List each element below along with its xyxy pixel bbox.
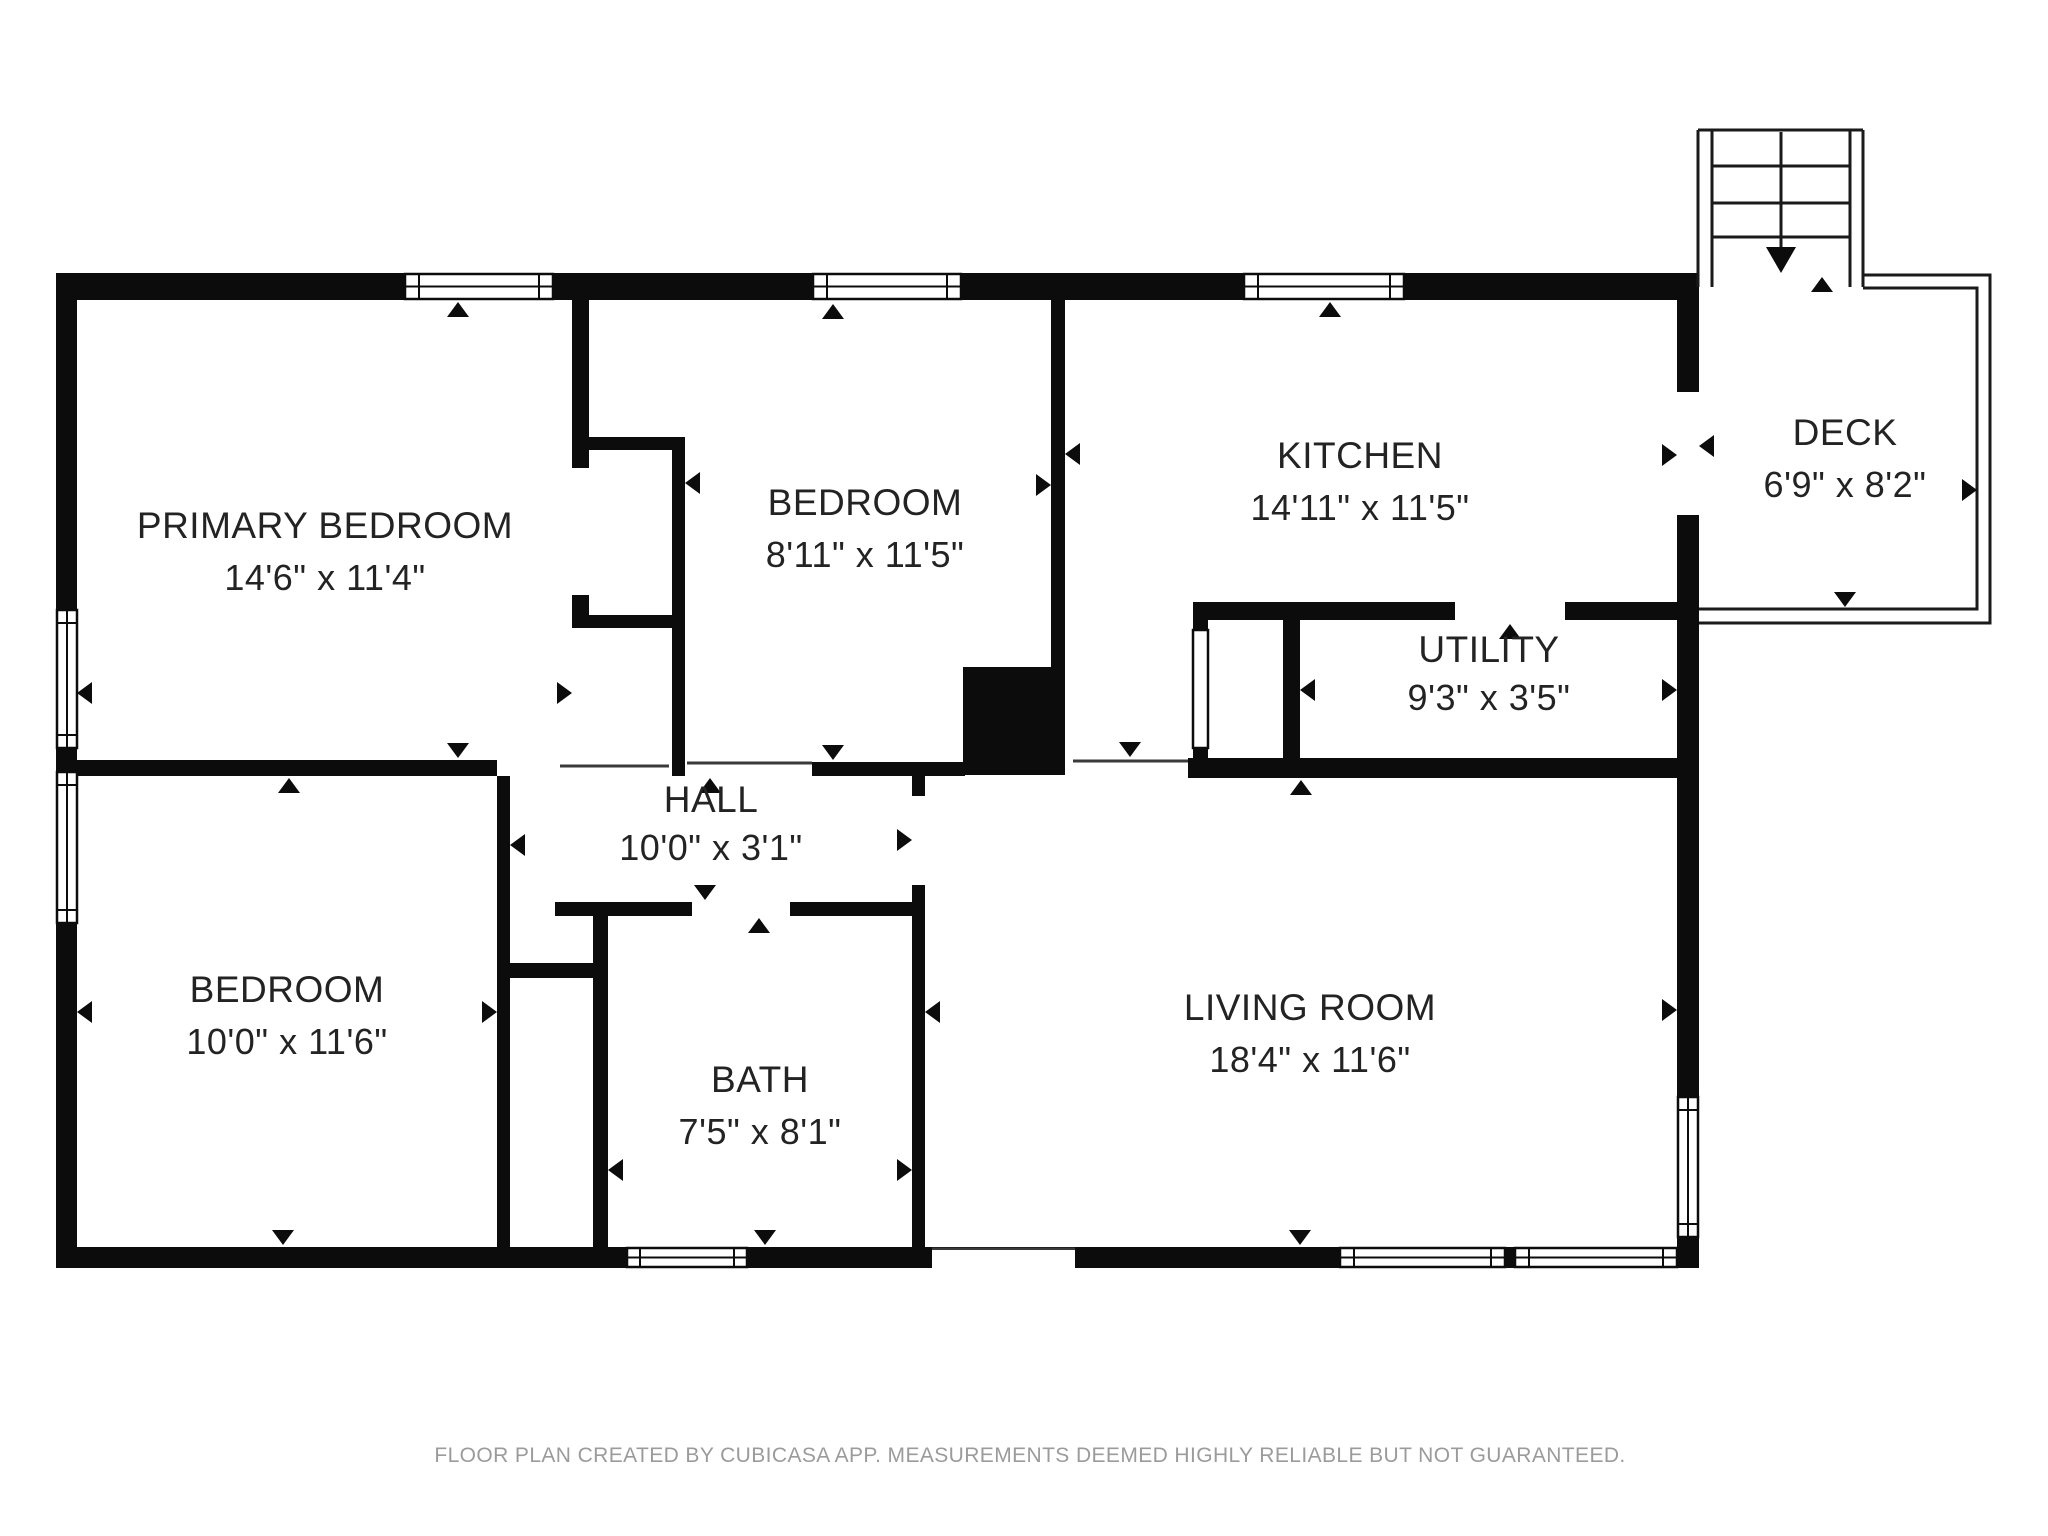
window-icon	[1678, 1097, 1698, 1237]
arrow-left-icon	[77, 682, 92, 704]
chimney-block	[963, 667, 1065, 775]
wall-hall-right-stub	[912, 776, 925, 796]
room-label-bedroom-bottom: BEDROOM 10'0" x 11'6"	[186, 969, 387, 1062]
room-label-utility: UTILITY 9'3" x 3'5"	[1408, 629, 1571, 718]
room-dims: 18'4" x 11'6"	[1209, 1039, 1410, 1080]
stairs-icon	[1698, 130, 1863, 287]
window-icon	[57, 610, 77, 748]
wall-closet-bottom	[572, 615, 685, 628]
door-leaf-cap-bottom	[1193, 748, 1208, 758]
stairs-down-arrow-icon	[1766, 247, 1796, 273]
wall-bedroom2-right	[497, 776, 510, 1247]
window-icon	[405, 274, 553, 299]
wall-hall-top	[812, 762, 965, 776]
room-labels: PRIMARY BEDROOM 14'6" x 11'4" BEDROOM 8'…	[137, 412, 1927, 1152]
wall-utility-left	[1283, 620, 1300, 762]
window-icon	[627, 1248, 747, 1267]
wall-primary-bottom	[56, 760, 497, 776]
arrow-right-icon	[557, 682, 572, 704]
wall-closet2-divider	[510, 963, 593, 978]
arrow-left-icon	[1065, 443, 1080, 465]
room-name: BEDROOM	[190, 969, 385, 1010]
arrow-right-icon	[897, 1159, 912, 1181]
floor-plan-svg: PRIMARY BEDROOM 14'6" x 11'4" BEDROOM 8'…	[0, 0, 2048, 1536]
room-name: UTILITY	[1418, 629, 1559, 670]
room-name: BATH	[711, 1059, 809, 1100]
room-label-bath: BATH 7'5" x 8'1"	[679, 1059, 842, 1152]
room-name: DECK	[1793, 412, 1898, 453]
room-label-kitchen: KITCHEN 14'11" x 11'5"	[1250, 435, 1469, 528]
arrow-right-icon	[1662, 999, 1677, 1021]
room-label-bedroom-top: BEDROOM 8'11" x 11'5"	[766, 482, 965, 575]
wall-right-corner	[1677, 1237, 1699, 1268]
window-icon	[1340, 1248, 1505, 1267]
arrow-left-icon	[77, 1001, 92, 1023]
arrow-up-icon	[1811, 277, 1833, 292]
room-dims: 9'3" x 3'5"	[1408, 677, 1571, 718]
wall-closet-right	[672, 437, 685, 776]
wall-closet-top	[572, 437, 685, 450]
arrow-right-icon	[1662, 444, 1677, 466]
arrow-right-icon	[1036, 474, 1051, 496]
room-label-hall: HALL 10'0" x 3'1"	[619, 779, 802, 868]
window-icon	[1244, 274, 1404, 299]
arrow-up-icon	[447, 302, 469, 317]
arrow-down-icon	[1119, 742, 1141, 757]
arrow-down-icon	[272, 1230, 294, 1245]
room-name: KITCHEN	[1277, 435, 1443, 476]
window-icon	[57, 772, 77, 923]
room-dims: 6'9" x 8'2"	[1764, 464, 1927, 505]
room-name: LIVING ROOM	[1184, 987, 1436, 1028]
arrow-left-icon	[1699, 435, 1714, 457]
footer-disclaimer: FLOOR PLAN CREATED BY CUBICASA APP. MEAS…	[434, 1444, 1625, 1467]
wall-layer	[56, 273, 1699, 1268]
arrow-down-icon	[447, 743, 469, 758]
room-dims: 7'5" x 8'1"	[679, 1111, 842, 1152]
room-dims: 14'11" x 11'5"	[1250, 487, 1469, 528]
arrow-left-icon	[685, 472, 700, 494]
arrow-left-icon	[925, 1001, 940, 1023]
floor-plan-page: PRIMARY BEDROOM 14'6" x 11'4" BEDROOM 8'…	[0, 0, 2048, 1536]
room-label-living-room: LIVING ROOM 18'4" x 11'6"	[1184, 987, 1436, 1080]
arrow-left-icon	[1300, 679, 1315, 701]
arrow-up-icon	[1319, 302, 1341, 317]
arrow-left-icon	[608, 1159, 623, 1181]
door-leaf-cap-top	[1193, 620, 1208, 630]
wall-hall-right-lower	[912, 885, 925, 1247]
room-name: PRIMARY BEDROOM	[137, 505, 513, 546]
arrow-down-icon	[754, 1230, 776, 1245]
arrow-down-icon	[694, 885, 716, 900]
arrow-right-icon	[1662, 679, 1677, 701]
arrow-up-icon	[1290, 780, 1312, 795]
arrow-down-icon	[1834, 592, 1856, 607]
wall-bath-left	[593, 902, 608, 1247]
arrow-up-icon	[278, 778, 300, 793]
arrow-right-icon	[482, 1001, 497, 1023]
wall-kitchen-bottom-a	[1193, 602, 1455, 620]
wall-bath-top-b	[790, 902, 925, 916]
window-icon	[813, 274, 961, 299]
arrow-left-icon	[510, 834, 525, 856]
room-label-deck: DECK 6'9" x 8'2"	[1764, 412, 1927, 505]
door-leaf	[1193, 630, 1208, 748]
arrow-up-icon	[822, 304, 844, 319]
wall-kitchen-bottom-b	[1565, 602, 1699, 620]
wall-utility-bottom	[1188, 758, 1699, 778]
wall-kitchen-left	[1051, 300, 1065, 667]
room-dims: 8'11" x 11'5"	[766, 534, 965, 575]
room-dims: 14'6" x 11'4"	[224, 557, 425, 598]
wall-bath-top-a	[555, 902, 692, 916]
arrow-right-icon	[897, 829, 912, 851]
patio-door-opening	[932, 1250, 1075, 1268]
wall-right-upper	[1677, 273, 1699, 392]
arrow-down-icon	[1289, 1230, 1311, 1245]
arrow-up-icon	[748, 918, 770, 933]
room-name: BEDROOM	[768, 482, 963, 523]
arrow-down-icon	[822, 745, 844, 760]
deck-door-opening	[1675, 392, 1701, 515]
room-dims: 10'0" x 11'6"	[186, 1021, 387, 1062]
room-name: HALL	[664, 779, 759, 820]
arrow-right-icon	[1962, 479, 1977, 501]
room-dims: 10'0" x 3'1"	[619, 827, 802, 868]
room-label-primary-bedroom: PRIMARY BEDROOM 14'6" x 11'4"	[137, 505, 513, 598]
window-icon	[1515, 1248, 1677, 1267]
